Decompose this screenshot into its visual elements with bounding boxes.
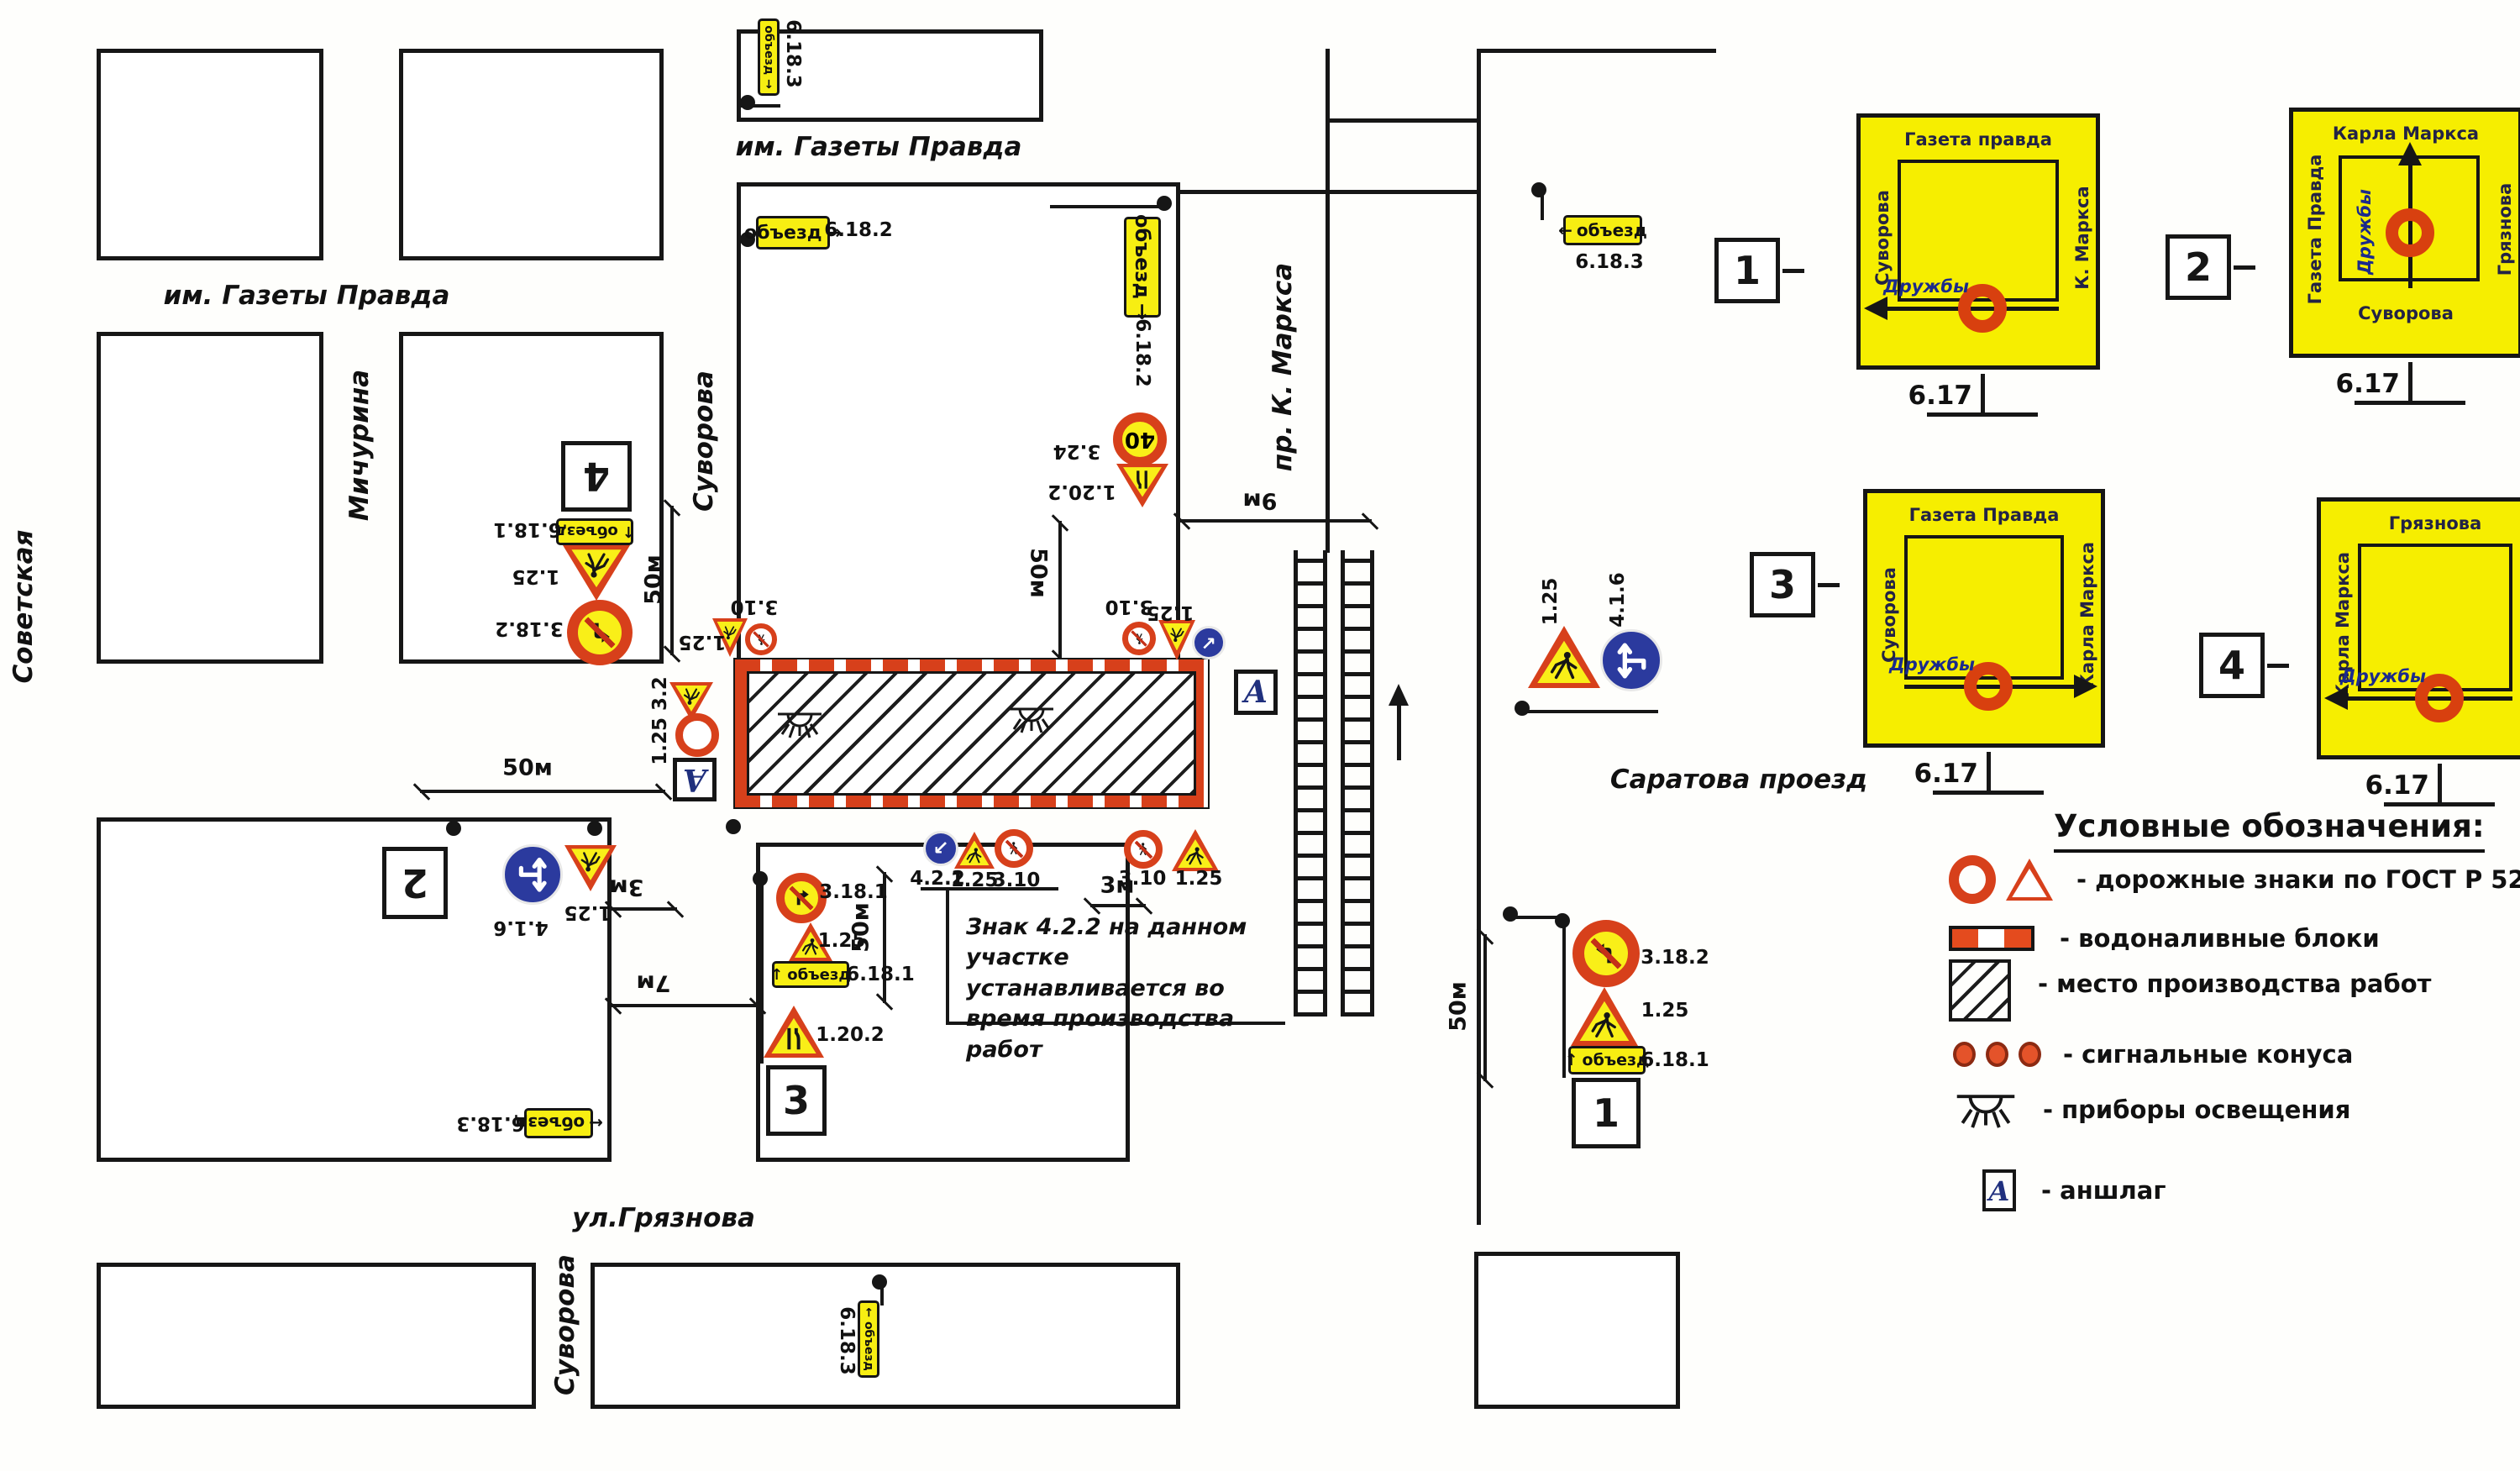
closed-road-ring bbox=[2386, 208, 2434, 257]
sign-number-label: 1.25 bbox=[564, 901, 612, 923]
scheme-ref-box: 1 bbox=[1572, 1078, 1641, 1148]
roadworks-icon bbox=[680, 687, 702, 707]
railway-track bbox=[1294, 550, 1374, 1017]
legend-label: - дорожные знаки по ГОСТ Р 52290-2004 bbox=[2076, 865, 2520, 894]
building-block bbox=[97, 332, 323, 664]
road-sign-prohibition: 40 bbox=[1113, 412, 1167, 466]
sign-number-label: 1.20.2 bbox=[816, 1024, 885, 1046]
scheme-street-right: К. Маркса bbox=[2072, 187, 2092, 290]
ref-box-dash bbox=[1818, 583, 1840, 587]
street-label: Советская bbox=[8, 530, 39, 684]
scheme-street-top: Грязнова bbox=[2321, 513, 2520, 533]
sign-number-label: 50м bbox=[641, 554, 667, 605]
scheme-street-center: Дружбы bbox=[2340, 666, 2426, 686]
detour-scheme: ГрязноваКарла МарксаСувороваДружбы6.17 bbox=[2317, 497, 2520, 759]
street-label: Саратова проезд bbox=[1610, 764, 1867, 795]
signal-cone-icon bbox=[1953, 1042, 1976, 1067]
objezd-arrow-icon: ↑ bbox=[770, 966, 783, 984]
prohibition-slash bbox=[1132, 838, 1155, 861]
sign-number-label: 3.10 bbox=[993, 869, 1041, 891]
scheme-ref-box: 4 bbox=[561, 441, 632, 512]
ref-box-text: 4 bbox=[583, 454, 610, 499]
sign-number-label: 50м bbox=[502, 755, 553, 781]
road-sign-triangle-icon bbox=[2006, 859, 2053, 901]
building-block bbox=[1474, 1252, 1680, 1409]
work-area-icon bbox=[1949, 959, 2011, 1022]
sign-number-label: 1.20.2 bbox=[1047, 481, 1116, 502]
street-label: им. Газеты Правда bbox=[164, 281, 450, 311]
ref-box-text: 3 bbox=[1769, 562, 1796, 607]
road-sign-mandatory-blue bbox=[1600, 629, 1662, 691]
water-block-icon bbox=[1949, 926, 2034, 951]
road-narrows-icon bbox=[779, 1026, 809, 1052]
roadworks-icon bbox=[1184, 845, 1207, 866]
road-sign-warning-triangle bbox=[1116, 464, 1168, 507]
building-block bbox=[399, 49, 664, 260]
objezd-text: объезд bbox=[1577, 220, 1647, 240]
road-sign-prohibition bbox=[745, 623, 777, 655]
road-sign-mandatory-blue: ↙ bbox=[1192, 626, 1226, 659]
objezd-arrow-icon: ← bbox=[589, 1113, 603, 1133]
sign-number-label: 1.25 bbox=[679, 631, 727, 653]
road-sign-warning-triangle bbox=[1528, 626, 1600, 688]
pole-dot bbox=[872, 1274, 887, 1290]
railway-rails bbox=[1294, 550, 1327, 1017]
sign-number-label: 6.18.2 bbox=[1131, 318, 1153, 387]
sign-number-label: 3м bbox=[1100, 873, 1135, 899]
road-line bbox=[420, 790, 665, 793]
road-line bbox=[1477, 49, 1481, 1225]
legend-item-water-blocks: - водоналивные блоки bbox=[1949, 924, 2380, 953]
road-line bbox=[1050, 205, 1168, 208]
road-line bbox=[1058, 521, 1062, 659]
legend-label: - приборы освещения bbox=[2043, 1095, 2350, 1124]
street-label: пр. К. Маркса bbox=[1268, 263, 1298, 471]
roadworks-icon bbox=[1168, 625, 1186, 645]
pole-dot bbox=[587, 821, 602, 836]
sign-number-label: 6.18.3 bbox=[836, 1306, 858, 1375]
roadworks-icon bbox=[964, 846, 984, 864]
sign-number-label: 6.18.2 bbox=[824, 219, 893, 241]
road-sign-prohibition bbox=[1572, 920, 1640, 987]
scheme-stand-base bbox=[1927, 412, 2038, 417]
detour-scheme: Газета ПравдаСувороваКарла МарксаДружбы6… bbox=[1863, 489, 2105, 748]
anshlag-icon: А bbox=[1982, 1169, 2016, 1211]
lamp-icon bbox=[773, 706, 827, 743]
sign-number-label: 3.18.2 bbox=[495, 617, 564, 639]
building-block bbox=[97, 1263, 536, 1409]
road-sign-warning-triangle bbox=[1172, 829, 1219, 871]
sign-number-label: 1.25 bbox=[1641, 1000, 1689, 1022]
road-sign-prohibition bbox=[1124, 830, 1163, 869]
sign-number-label: 3.18.2 bbox=[1641, 947, 1709, 969]
street-label: ул.Грязнова bbox=[572, 1203, 755, 1233]
scheme-stand-base bbox=[2384, 802, 2495, 806]
road-line bbox=[612, 1004, 759, 1007]
detour-scheme: Газета правдаСувороваК. МарксаДружбы6.17 bbox=[1856, 113, 2100, 370]
scheme-ref-box: 3 bbox=[1750, 552, 1815, 617]
road-sign-warning-triangle bbox=[954, 832, 995, 869]
legend-title: Условные обозначения: bbox=[2054, 808, 2485, 853]
ref-box-text: 2 bbox=[402, 860, 428, 906]
sign-number-label: 50м bbox=[1446, 981, 1472, 1032]
objezd-arrow-icon: → bbox=[1131, 303, 1154, 320]
road-line bbox=[1180, 519, 1372, 523]
road-narrows-icon bbox=[1130, 469, 1156, 491]
legend-item-cones: - сигнальные конуса bbox=[1953, 1040, 2353, 1069]
ref-box-text: 2 bbox=[2185, 244, 2212, 290]
road-sign-objezd: объезд→ bbox=[758, 18, 780, 96]
scheme-stand-pole bbox=[2438, 764, 2442, 802]
sign-number-label: 1.25 bbox=[1540, 578, 1562, 626]
street-label: Мичурина bbox=[344, 370, 375, 521]
scheme-route-arrow bbox=[2398, 142, 2422, 165]
ref-box-text: А bbox=[682, 762, 706, 797]
road-sign-mandatory-blue bbox=[502, 844, 563, 905]
road-sign-mandatory-blue: ↙ bbox=[923, 831, 958, 866]
road-line bbox=[1180, 190, 1479, 194]
scheme-ref-box: 2 bbox=[2166, 234, 2231, 300]
direction-arrow-head bbox=[1389, 684, 1409, 706]
pole-dot bbox=[740, 95, 755, 110]
legend-item-road-signs: - дорожные знаки по ГОСТ Р 52290-2004 bbox=[1949, 855, 2520, 904]
ref-box-dash bbox=[2267, 664, 2289, 668]
ref-box-text: А bbox=[1243, 675, 1268, 710]
sign-number-label: 1.25 bbox=[1175, 868, 1223, 890]
lamp-icon bbox=[1005, 701, 1058, 738]
scheme-street-right: Карла Маркса bbox=[2077, 542, 2097, 688]
objezd-arrow-icon: ↑ bbox=[622, 523, 635, 541]
roadworks-icon bbox=[580, 552, 613, 580]
road-sign-prohibition bbox=[995, 829, 1033, 868]
anshlag-box: А bbox=[673, 758, 717, 801]
pole-dot bbox=[726, 819, 741, 834]
sign-number-label: 3.24 bbox=[1053, 440, 1101, 462]
objezd-arrow-icon: ↑ bbox=[1565, 1051, 1578, 1069]
ref-box-dash bbox=[1782, 269, 1804, 273]
road-line bbox=[1326, 49, 1330, 553]
sign-number-label: 3.10 bbox=[1105, 596, 1153, 617]
scheme-stand-pole bbox=[1987, 752, 1991, 791]
ref-box-text: 3 bbox=[783, 1078, 810, 1123]
objezd-text: объезд bbox=[762, 25, 775, 75]
scheme-street-top: Газета правда bbox=[1861, 129, 2096, 150]
sign-number-label: 1.25 bbox=[512, 565, 560, 587]
road-sign-objezd: ↑объезд bbox=[772, 961, 849, 988]
legend-item-lighting: - приборы освещения bbox=[1950, 1085, 2350, 1134]
scheme-street-right: Грязнова bbox=[2495, 183, 2515, 276]
sign-number-label: 6.18.1 bbox=[1641, 1049, 1709, 1071]
objezd-arrow-icon: → bbox=[762, 79, 775, 89]
pole-dot bbox=[446, 821, 461, 836]
detour-arrow-icon: ↙ bbox=[932, 838, 948, 859]
railway-rails bbox=[1341, 550, 1374, 1017]
objezd-text: объезд bbox=[1131, 214, 1154, 299]
legend-label: - водоналивные блоки bbox=[2060, 924, 2380, 953]
pole-dot bbox=[1503, 906, 1518, 922]
road-line bbox=[946, 889, 949, 1025]
street-label: Суворова bbox=[550, 1254, 580, 1395]
pole-dot bbox=[1515, 701, 1530, 716]
scheme-route-arrow bbox=[1864, 297, 1887, 320]
sign-number-label: 3.18.1 bbox=[819, 881, 888, 903]
road-sign-warning-triangle bbox=[1158, 620, 1195, 660]
scheme-route-arrow bbox=[2074, 675, 2097, 698]
road-line bbox=[1090, 904, 1146, 907]
scheme-street-bottom: Суворова bbox=[2293, 303, 2518, 323]
street-label: Суворова bbox=[689, 370, 719, 512]
scheme-route-arrow bbox=[2324, 686, 2348, 710]
pole-dot bbox=[753, 871, 768, 886]
sign-number-label: 3м bbox=[610, 875, 644, 901]
prohibition-slash bbox=[751, 629, 770, 649]
sign-number-label: 1.25 3.2 bbox=[649, 676, 671, 765]
scheme-street-left: Суворова bbox=[1879, 567, 1899, 663]
sign-number-label: 4.1.6 bbox=[493, 917, 549, 938]
road-sign-objezd: ←объезд bbox=[858, 1300, 879, 1378]
legend-label: - сигнальные конуса bbox=[2063, 1040, 2353, 1069]
road-line bbox=[1522, 710, 1658, 713]
road-sign-prohibition bbox=[675, 713, 719, 757]
scheme-sign-6-17: 6.17 bbox=[2354, 770, 2429, 801]
scheme-street-center: Дружбы bbox=[1889, 654, 1975, 675]
legend-item-anshlag: А - аншлаг bbox=[1982, 1169, 2166, 1211]
scheme-ref-box: 3 bbox=[766, 1065, 827, 1136]
sign-number-label: 4.1.6 bbox=[1607, 572, 1629, 628]
sign-number-label: 1.25 bbox=[1147, 602, 1194, 623]
objezd-arrow-icon: ← bbox=[862, 1307, 875, 1317]
road-sign-objezd: ↑объезд bbox=[1568, 1046, 1646, 1074]
road-sign-warning-triangle bbox=[764, 1006, 824, 1058]
road-sign-warning-triangle bbox=[1571, 987, 1638, 1046]
building-block bbox=[97, 49, 323, 260]
signal-cone-icon bbox=[1986, 1042, 2008, 1067]
objezd-text: объезд bbox=[744, 223, 822, 244]
roadworks-icon bbox=[578, 850, 604, 874]
road-sign-objezd: объезд→ bbox=[756, 216, 830, 250]
road-sign-prohibition bbox=[567, 600, 633, 665]
scheme-sign-6-17: 6.17 bbox=[1897, 381, 1972, 411]
road-sign-circle-icon bbox=[1949, 855, 1996, 904]
sign-number-label: 7м bbox=[637, 970, 671, 996]
scheme-stand-base bbox=[2355, 401, 2465, 405]
road-line bbox=[1541, 193, 1544, 220]
ref-box-dash bbox=[2234, 265, 2255, 270]
sign-number-label: 6.18.3 bbox=[782, 19, 804, 88]
ref-box-text: 1 bbox=[1593, 1090, 1620, 1136]
scheme-sign-6-17: 6.17 bbox=[2324, 369, 2400, 399]
scheme-ref-box: 1 bbox=[1714, 238, 1780, 303]
scheme-stand-pole bbox=[2408, 362, 2412, 401]
scheme-stand-base bbox=[1933, 791, 2044, 795]
sign-number-label: 3.10 bbox=[731, 596, 779, 617]
prohibition-slash bbox=[1003, 838, 1026, 860]
roadworks-icon bbox=[1546, 649, 1583, 680]
street-label: им. Газеты Правда bbox=[736, 132, 1022, 162]
objezd-text: объезд bbox=[862, 1321, 875, 1371]
sign-number-label: 6.18.3 bbox=[456, 1112, 525, 1134]
road-sign-objezd: ←объезд bbox=[1563, 215, 1642, 245]
prohibition-slash bbox=[786, 883, 816, 913]
sign-number-label: 6.18.1 bbox=[493, 518, 562, 540]
sign-number-label: 4.2.2 bbox=[910, 868, 965, 890]
scheme-street-left: Суворова bbox=[1872, 190, 1893, 286]
detour-arrow-icon: ↙ bbox=[1201, 633, 1216, 654]
ref-box-text: 1 bbox=[1734, 248, 1761, 293]
lighting-icon bbox=[1950, 1085, 2021, 1134]
road-sign-objezd: ←объезд bbox=[524, 1108, 593, 1138]
road-line bbox=[1477, 49, 1716, 53]
ref-box-text: 4 bbox=[2218, 643, 2245, 688]
roadworks-icon bbox=[1588, 1010, 1621, 1039]
work-note: Знак 4.2.2 на данном участке устанавлива… bbox=[966, 912, 1278, 1065]
road-line bbox=[612, 907, 677, 911]
pole-dot bbox=[1157, 196, 1172, 211]
legend-label: - аншлаг bbox=[2041, 1176, 2166, 1205]
objezd-arrow-icon: ← bbox=[1558, 220, 1572, 240]
sign-number-label: 6.18.3 bbox=[1575, 251, 1644, 273]
anshlag-box: А bbox=[1234, 670, 1278, 715]
prohibition-slash bbox=[580, 613, 620, 653]
scheme-ref-box: 2 bbox=[382, 847, 448, 919]
scheme-street-center: Дружбы bbox=[2355, 189, 2375, 275]
detour-scheme: Карла МарксаГазета ПравдаГрязноваСуворов… bbox=[2289, 108, 2520, 358]
traffic-scheme-canvas: Условные обозначения: - дорожные знаки п… bbox=[0, 0, 2520, 1471]
scheme-street-left: Газета Правда bbox=[2305, 155, 2325, 305]
prohibition-slash bbox=[1129, 628, 1148, 648]
road-sign-objezd: объезд→ bbox=[1124, 217, 1161, 318]
scheme-ref-box: 4 bbox=[2199, 633, 2265, 698]
pole-dot bbox=[1555, 913, 1570, 928]
building-block bbox=[737, 182, 1180, 664]
road-line bbox=[1483, 934, 1487, 1081]
scheme-street-top: Карла Маркса bbox=[2293, 123, 2518, 144]
road-line bbox=[1330, 118, 1479, 123]
road-sign-warning-triangle bbox=[563, 545, 630, 601]
objezd-text: объезд bbox=[554, 523, 618, 541]
sign-number-label: 50м bbox=[1026, 548, 1052, 598]
legend-label: - место производства работ bbox=[2038, 969, 2431, 998]
road-line bbox=[670, 506, 674, 655]
pole-dot bbox=[1531, 182, 1546, 197]
direction-arrow bbox=[1397, 706, 1401, 760]
objezd-text: объезд bbox=[787, 966, 851, 984]
legend-item-work-area: - место производства работ bbox=[1949, 959, 2431, 1022]
scheme-sign-6-17: 6.17 bbox=[1903, 759, 1978, 789]
sign-number-label: 50м bbox=[848, 902, 874, 953]
objezd-text: объезд bbox=[1583, 1051, 1650, 1069]
scheme-stand-pole bbox=[1981, 374, 1985, 412]
prohibition-slash bbox=[1587, 934, 1626, 974]
signal-cone-icon bbox=[2019, 1042, 2041, 1067]
scheme-street-center: Дружбы bbox=[1883, 276, 1969, 297]
sign-number-label: 6.18.1 bbox=[846, 964, 915, 985]
road-sign-objezd: ↑объезд bbox=[556, 518, 633, 545]
sign-number-label: 9м bbox=[1243, 488, 1278, 514]
speed-limit-value: 40 bbox=[1125, 427, 1155, 452]
scheme-street-top: Газета Правда bbox=[1867, 505, 2101, 525]
road-sign-prohibition bbox=[1122, 622, 1156, 655]
